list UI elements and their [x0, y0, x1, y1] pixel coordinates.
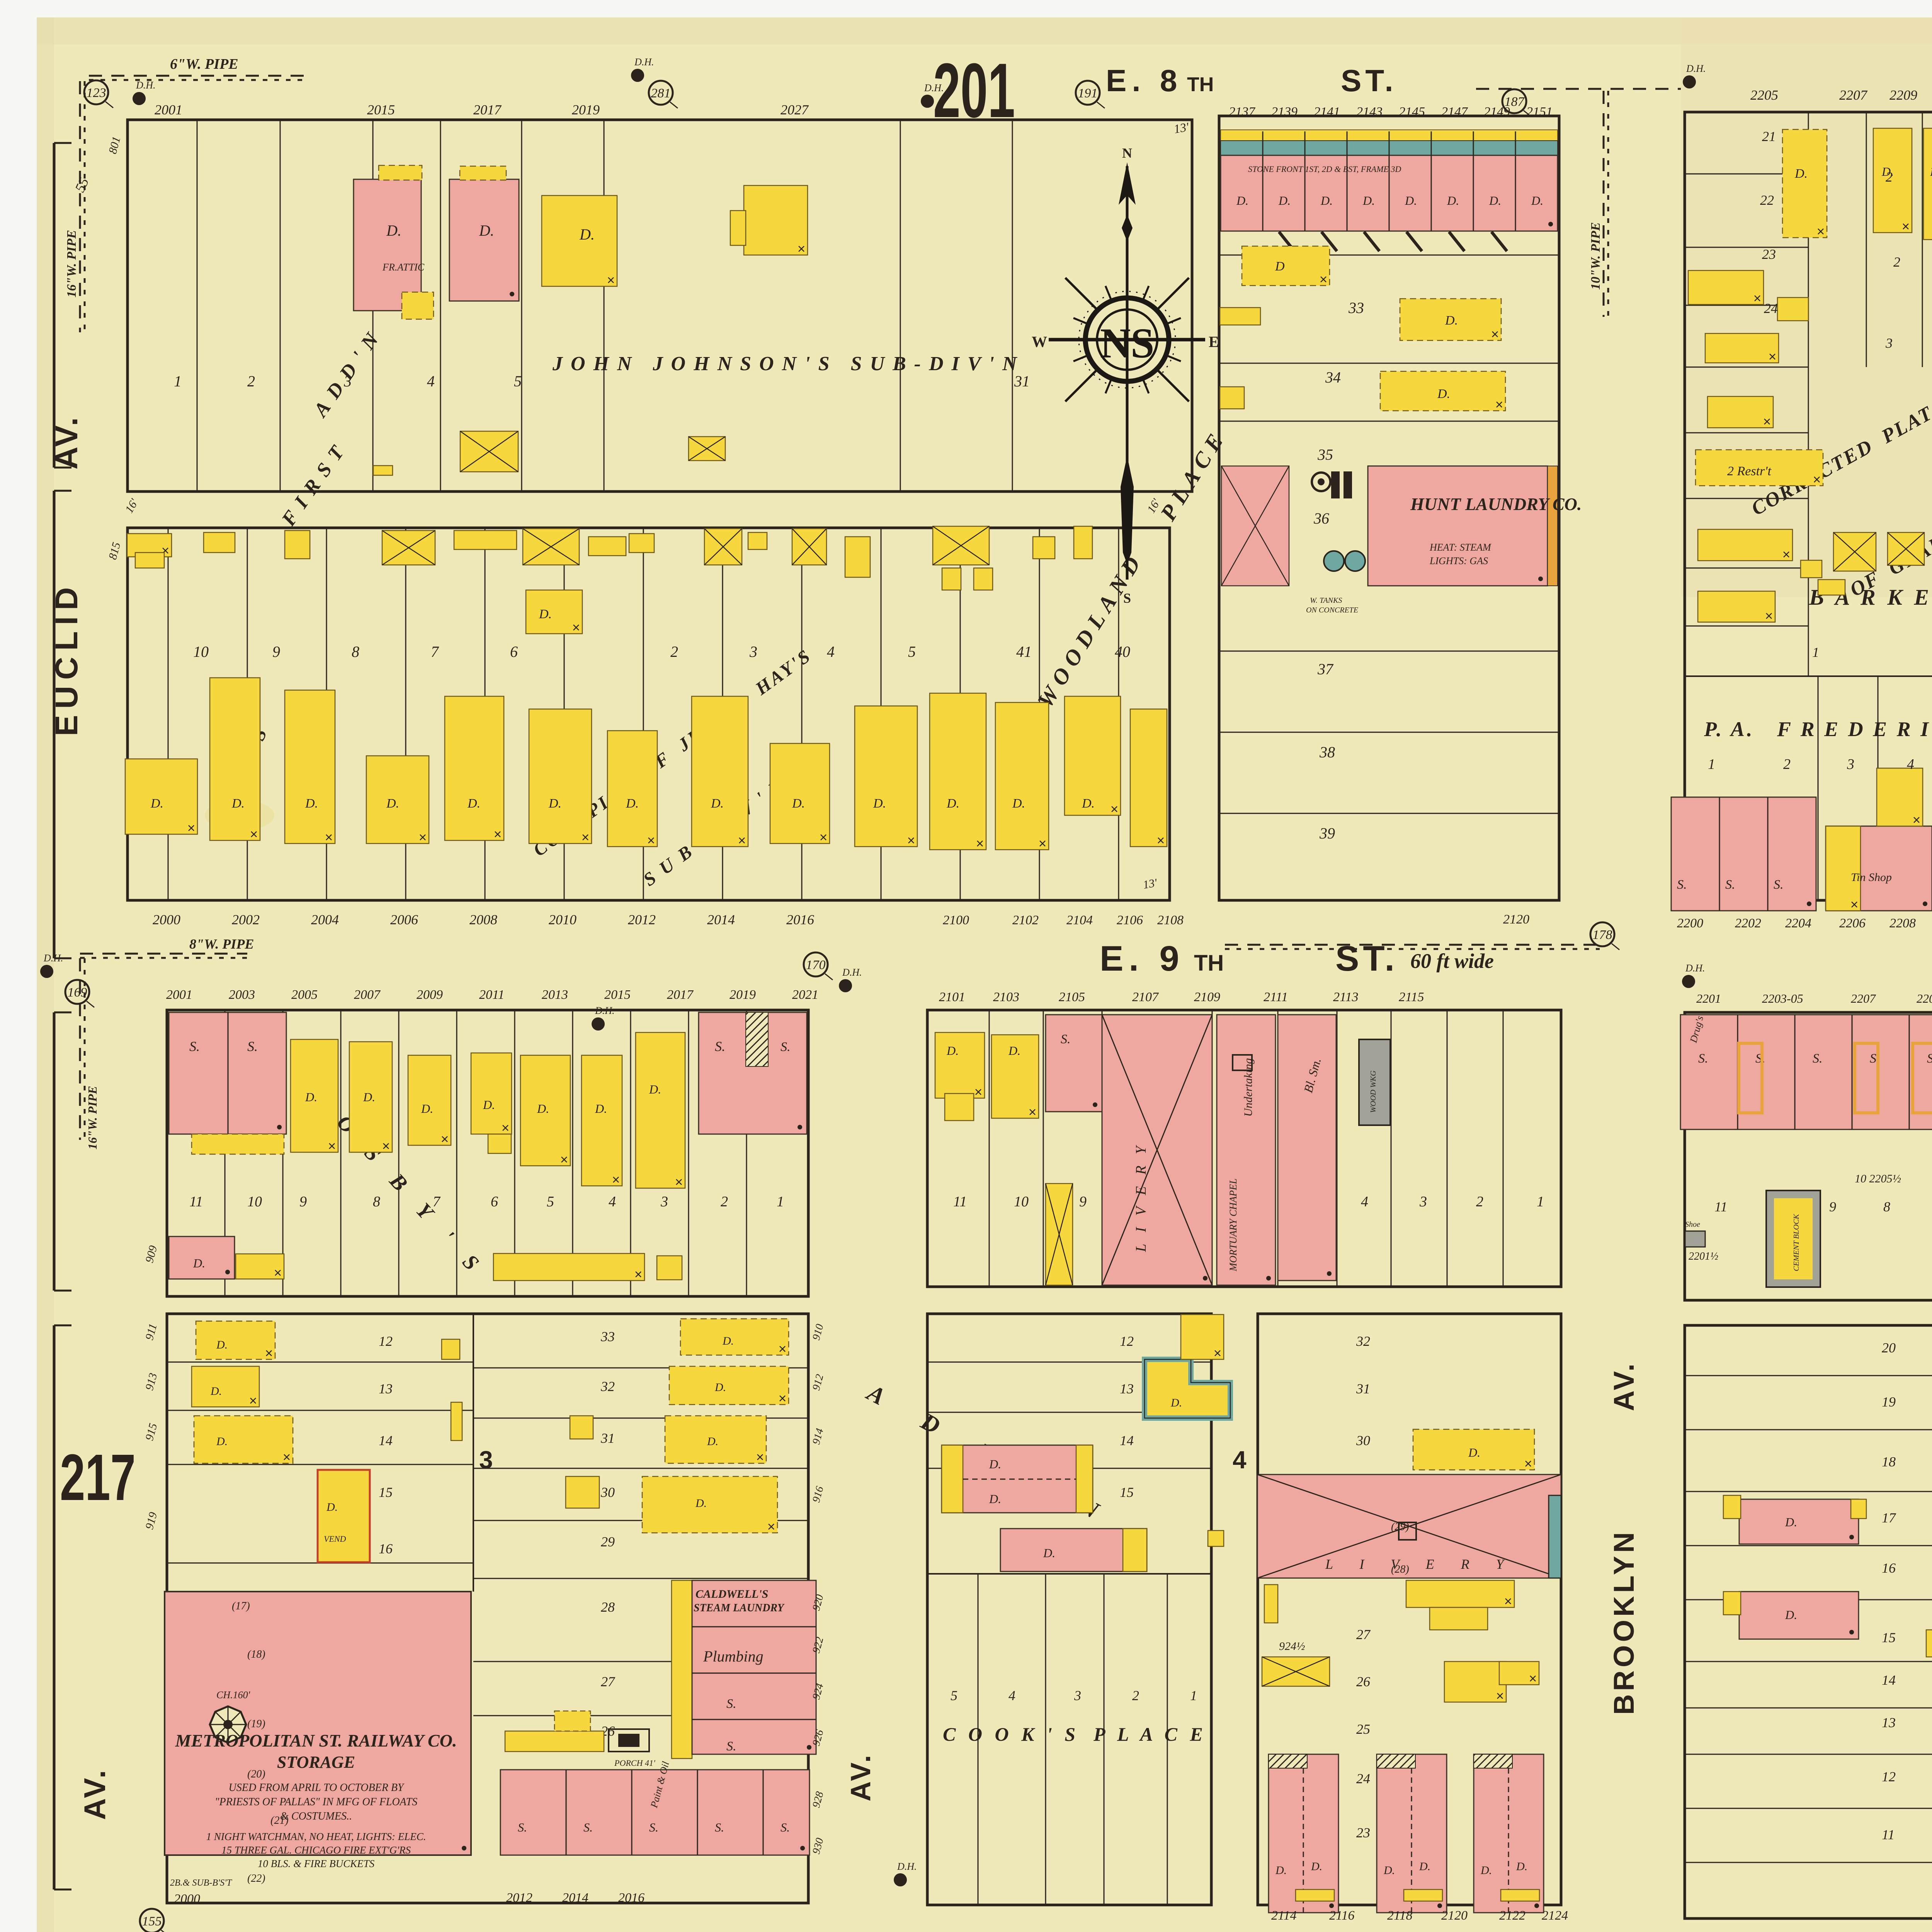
svg-text:38: 38: [1319, 743, 1335, 761]
svg-text:S.: S.: [1774, 878, 1784, 892]
svg-text:S.: S.: [726, 1739, 736, 1753]
svg-text:D.: D.: [1480, 1864, 1492, 1877]
svg-text:D.: D.: [946, 1044, 959, 1058]
svg-text:32: 32: [600, 1379, 615, 1394]
svg-text:2017: 2017: [667, 988, 694, 1002]
svg-text:W. TANKS: W. TANKS: [1310, 596, 1342, 605]
svg-text:2201½: 2201½: [1689, 1250, 1718, 1262]
svg-text:10 BLS. & FIRE BUCKETS: 10 BLS. & FIRE BUCKETS: [258, 1858, 375, 1869]
svg-text:D.H.: D.H.: [634, 56, 654, 68]
svg-text:11: 11: [953, 1194, 967, 1210]
svg-text:D.: D.: [1082, 796, 1095, 811]
svg-text:D.: D.: [1383, 1864, 1395, 1877]
svg-text:2201: 2201: [1696, 992, 1721, 1005]
svg-text:2203-05: 2203-05: [1762, 992, 1803, 1005]
svg-text:12: 12: [1882, 1769, 1896, 1784]
svg-text:TH: TH: [1187, 73, 1214, 96]
svg-text:2001: 2001: [155, 102, 182, 117]
svg-text:D.H.: D.H.: [924, 82, 944, 94]
svg-text:2108: 2108: [1157, 913, 1184, 927]
svg-text:2016: 2016: [618, 1891, 645, 1905]
svg-text:S.: S.: [1813, 1051, 1823, 1066]
svg-text:D.: D.: [1445, 313, 1458, 328]
svg-text:D.: D.: [326, 1501, 338, 1514]
svg-text:2100: 2100: [943, 913, 969, 927]
svg-text:ST.: ST.: [1341, 63, 1397, 98]
svg-text:N: N: [1122, 145, 1132, 161]
svg-text:2002: 2002: [232, 912, 260, 927]
svg-text:11: 11: [1714, 1199, 1727, 1214]
svg-text:2207: 2207: [1851, 992, 1876, 1005]
svg-text:1: 1: [174, 372, 182, 390]
svg-text:"PRIESTS OF PALLAS" IN MFG OF: "PRIESTS OF PALLAS" IN MFG OF FLOATS: [215, 1796, 417, 1808]
svg-text:D.: D.: [1419, 1860, 1430, 1873]
svg-text:4: 4: [1907, 756, 1914, 772]
svg-text:1: 1: [1708, 756, 1715, 772]
svg-text:13: 13: [379, 1381, 393, 1396]
svg-text:155: 155: [142, 1914, 162, 1929]
svg-text:(19): (19): [247, 1718, 265, 1730]
svg-text:4: 4: [609, 1194, 616, 1210]
svg-text:10: 10: [247, 1194, 262, 1210]
svg-text:S.: S.: [1755, 1051, 1765, 1066]
svg-text:D.: D.: [1785, 1515, 1797, 1529]
svg-text:2105: 2105: [1059, 990, 1085, 1004]
svg-text:3: 3: [479, 1446, 493, 1474]
svg-text:2205: 2205: [1750, 87, 1778, 103]
svg-text:EUCLID: EUCLID: [49, 581, 84, 736]
svg-text:2017: 2017: [473, 102, 502, 117]
svg-text:29: 29: [601, 1534, 615, 1549]
svg-text:D.H.: D.H.: [842, 967, 862, 978]
svg-text:J O H N J O H N S O N ' S: J O H N J O H N S O N ' S S U B - D I V …: [552, 353, 1019, 375]
svg-text:S.: S.: [649, 1820, 658, 1834]
svg-text:2003: 2003: [229, 988, 255, 1002]
svg-text:C O O K ' S: C O O K ' S: [943, 1723, 1079, 1745]
svg-text:D.: D.: [792, 796, 805, 811]
svg-text:2107: 2107: [1132, 990, 1159, 1004]
svg-text:27: 27: [1356, 1627, 1371, 1642]
svg-text:USED FROM APRIL TO OCTOBER BY: USED FROM APRIL TO OCTOBER BY: [229, 1782, 405, 1794]
svg-text:15: 15: [1120, 1485, 1134, 1500]
svg-text:2111: 2111: [1264, 990, 1288, 1004]
svg-text:2004: 2004: [311, 912, 339, 927]
svg-text:13': 13': [1142, 876, 1158, 891]
svg-text:2106: 2106: [1117, 913, 1143, 927]
svg-text:(21): (21): [270, 1815, 289, 1827]
svg-text:178: 178: [1593, 928, 1612, 942]
svg-text:AV.: AV.: [49, 415, 84, 469]
svg-text:2143: 2143: [1356, 105, 1383, 119]
svg-text:2027: 2027: [781, 102, 809, 117]
svg-text:5: 5: [514, 372, 522, 390]
svg-text:Plumbing: Plumbing: [703, 1648, 764, 1665]
svg-text:S.: S.: [1677, 878, 1687, 892]
svg-text:D.: D.: [1785, 1608, 1797, 1622]
svg-text:2139: 2139: [1271, 105, 1298, 119]
svg-text:41: 41: [1016, 643, 1032, 660]
svg-text:D.: D.: [989, 1492, 1001, 1506]
svg-text:D.: D.: [386, 222, 401, 239]
svg-text:D.: D.: [537, 1102, 549, 1116]
svg-text:D.: D.: [946, 796, 959, 811]
svg-text:2: 2: [1132, 1688, 1139, 1703]
svg-text:2204: 2204: [1785, 916, 1811, 930]
svg-text:Shoe: Shoe: [1685, 1220, 1700, 1229]
svg-text:2102: 2102: [1012, 913, 1039, 927]
svg-text:STEAM LAUNDRY: STEAM LAUNDRY: [694, 1602, 785, 1614]
svg-text:2137: 2137: [1229, 105, 1256, 119]
svg-text:23: 23: [1762, 247, 1776, 262]
svg-text:D.H.: D.H.: [136, 80, 156, 91]
svg-text:2209: 2209: [1917, 992, 1932, 1005]
svg-text:2115: 2115: [1399, 990, 1424, 1004]
svg-text:2021: 2021: [792, 988, 818, 1002]
svg-text:4: 4: [1233, 1446, 1247, 1474]
svg-text:D.: D.: [722, 1335, 734, 1347]
svg-text:8"W. PIPE: 8"W. PIPE: [189, 936, 254, 952]
svg-text:S.: S.: [1927, 1051, 1932, 1066]
svg-text:2: 2: [1783, 756, 1791, 772]
svg-text:AV.: AV.: [78, 1768, 112, 1820]
svg-text:MORTUARY CHAPEL: MORTUARY CHAPEL: [1228, 1179, 1239, 1272]
svg-text:W: W: [1032, 333, 1047, 350]
svg-text:D.: D.: [479, 222, 494, 239]
svg-text:2122: 2122: [1499, 1908, 1526, 1923]
svg-text:30: 30: [600, 1485, 615, 1500]
svg-text:D.H.: D.H.: [1686, 63, 1706, 74]
svg-text:2206: 2206: [1839, 916, 1866, 930]
svg-text:12: 12: [379, 1333, 393, 1349]
svg-text:2005: 2005: [291, 988, 318, 1002]
svg-text:D.: D.: [483, 1098, 495, 1112]
svg-text:17: 17: [1882, 1510, 1896, 1526]
svg-text:8: 8: [1883, 1199, 1890, 1214]
svg-text:D.: D.: [1012, 796, 1025, 811]
svg-text:D.: D.: [714, 1381, 726, 1394]
svg-text:D.: D.: [707, 1435, 718, 1448]
svg-text:D.: D.: [210, 1385, 222, 1398]
svg-text:28: 28: [601, 1599, 615, 1615]
svg-text:2001: 2001: [166, 988, 192, 1002]
svg-text:S.: S.: [518, 1820, 527, 1834]
svg-text:CEMENT BLOCK: CEMENT BLOCK: [1792, 1213, 1801, 1271]
svg-text:E. 9: E. 9: [1100, 939, 1185, 978]
svg-text:D.: D.: [1320, 194, 1333, 207]
svg-text:S.: S.: [781, 1040, 791, 1054]
svg-text:2015: 2015: [367, 102, 395, 117]
svg-text:S.: S.: [715, 1820, 724, 1834]
svg-text:16"W. PIPE: 16"W. PIPE: [65, 230, 79, 298]
svg-text:7: 7: [431, 643, 439, 660]
svg-text:D.: D.: [873, 796, 886, 811]
svg-text:13: 13: [1120, 1381, 1134, 1396]
svg-text:D.: D.: [305, 1090, 317, 1104]
svg-text:4: 4: [427, 372, 435, 390]
svg-text:METROPOLITAN ST. RAILWAY CO.: METROPOLITAN ST. RAILWAY CO.: [175, 1731, 457, 1750]
svg-text:5: 5: [547, 1194, 554, 1210]
svg-text:26: 26: [1356, 1674, 1370, 1689]
svg-text:2207: 2207: [1839, 87, 1868, 103]
svg-text:FR.ATTIC: FR.ATTIC: [382, 262, 425, 273]
svg-text:3: 3: [1419, 1194, 1427, 1210]
svg-text:2: 2: [1886, 169, 1893, 185]
svg-text:2200: 2200: [1677, 916, 1703, 930]
svg-text:27: 27: [601, 1674, 616, 1689]
svg-text:NS: NS: [1100, 320, 1155, 367]
svg-text:(17): (17): [232, 1600, 250, 1612]
svg-text:D.H.: D.H.: [43, 952, 63, 964]
svg-text:15: 15: [1882, 1630, 1896, 1645]
svg-text:D.: D.: [216, 1435, 228, 1448]
svg-text:CALDWELL'S: CALDWELL'S: [696, 1588, 768, 1600]
svg-text:19: 19: [1882, 1394, 1896, 1410]
svg-text:E. 8: E. 8: [1106, 63, 1182, 98]
svg-text:10"W. PIPE: 10"W. PIPE: [1588, 222, 1603, 290]
svg-text:123: 123: [87, 86, 106, 100]
svg-text:36: 36: [1313, 510, 1329, 527]
svg-text:8: 8: [352, 643, 359, 660]
svg-text:P L A C E: P L A C E: [1093, 1723, 1207, 1745]
svg-text:ST.: ST.: [1329, 1927, 1388, 1932]
svg-text:2008: 2008: [469, 912, 497, 927]
svg-text:S.: S.: [247, 1039, 258, 1054]
svg-text:187: 187: [1505, 95, 1525, 109]
svg-text:2012: 2012: [506, 1891, 532, 1905]
svg-text:D.: D.: [363, 1090, 375, 1104]
svg-text:E. 10: E. 10: [1103, 1927, 1206, 1932]
svg-text:5: 5: [908, 643, 916, 660]
svg-text:31: 31: [1356, 1381, 1370, 1396]
svg-text:STORAGE: STORAGE: [277, 1753, 355, 1772]
svg-text:34: 34: [1325, 369, 1341, 386]
svg-text:2019: 2019: [730, 988, 756, 1002]
svg-text:D.H.: D.H.: [1685, 963, 1705, 974]
svg-text:Undertaking: Undertaking: [1242, 1058, 1255, 1117]
svg-text:2007: 2007: [354, 988, 381, 1002]
svg-text:2: 2: [721, 1194, 728, 1210]
svg-text:191: 191: [1078, 86, 1098, 100]
svg-text:22: 22: [1760, 192, 1774, 208]
svg-text:D.: D.: [421, 1102, 433, 1116]
svg-text:9: 9: [1829, 1199, 1836, 1214]
svg-text:D.: D.: [231, 796, 245, 811]
svg-text:30: 30: [1356, 1433, 1370, 1448]
svg-text:S.: S.: [1698, 1051, 1708, 1066]
svg-text:10: 10: [193, 643, 209, 660]
svg-text:D.: D.: [579, 226, 595, 243]
svg-text:D.: D.: [1311, 1860, 1322, 1873]
svg-text:60 ft wide: 60 ft wide: [1410, 949, 1494, 973]
svg-text:2147: 2147: [1441, 105, 1468, 119]
svg-text:HEAT: STEAM: HEAT: STEAM: [1429, 542, 1492, 553]
svg-text:D.: D.: [1794, 167, 1808, 181]
svg-text:ON CONCRETE: ON CONCRETE: [1306, 606, 1358, 614]
svg-text:39: 39: [1319, 825, 1335, 842]
svg-text:(22): (22): [247, 1872, 265, 1884]
svg-text:D.: D.: [1278, 194, 1291, 207]
svg-text:3: 3: [1847, 756, 1854, 772]
svg-text:S.: S.: [1061, 1032, 1071, 1046]
svg-text:31: 31: [1014, 372, 1030, 390]
svg-text:S.: S.: [583, 1820, 593, 1834]
svg-text:15 THREE GAL. CHICAGO FIRE EXT: 15 THREE GAL. CHICAGO FIRE EXT'G'RS: [221, 1844, 411, 1856]
svg-text:LIGHTS: GAS: LIGHTS: GAS: [1429, 555, 1488, 566]
svg-text:D.: D.: [539, 607, 552, 621]
svg-text:BROOKLYN: BROOKLYN: [1608, 1529, 1640, 1715]
svg-text:D.: D.: [1531, 194, 1543, 207]
svg-text:9: 9: [1079, 1194, 1087, 1210]
svg-text:S.: S.: [781, 1820, 790, 1834]
svg-text:D.: D.: [386, 796, 399, 811]
svg-text:2: 2: [1476, 1194, 1483, 1210]
svg-text:2011: 2011: [479, 988, 504, 1002]
svg-text:HUNT LAUNDRY CO.: HUNT LAUNDRY CO.: [1410, 494, 1582, 514]
svg-text:(28): (28): [1391, 1563, 1409, 1575]
svg-text:2010: 2010: [549, 912, 577, 927]
svg-text:11: 11: [189, 1194, 203, 1210]
svg-text:35: 35: [1317, 446, 1333, 463]
svg-text:6: 6: [491, 1194, 498, 1210]
svg-text:169: 169: [68, 985, 87, 1000]
svg-text:16: 16: [1882, 1560, 1896, 1576]
svg-text:D.: D.: [1447, 194, 1459, 207]
svg-text:25: 25: [1356, 1721, 1370, 1737]
svg-text:3: 3: [1074, 1688, 1081, 1703]
svg-text:D.: D.: [193, 1256, 205, 1270]
svg-text:2124: 2124: [1542, 1908, 1568, 1923]
svg-text:ST.: ST.: [1335, 939, 1398, 978]
svg-text:2014: 2014: [562, 1891, 588, 1905]
svg-text:14: 14: [379, 1433, 393, 1448]
svg-text:D.: D.: [1489, 194, 1501, 207]
svg-text:16"W. PIPE: 16"W. PIPE: [85, 1086, 99, 1150]
svg-text:D.: D.: [1930, 166, 1932, 179]
svg-text:2109: 2109: [1194, 990, 1220, 1004]
svg-text:15: 15: [379, 1485, 393, 1500]
svg-text:23: 23: [1356, 1825, 1370, 1840]
svg-text:D.: D.: [1362, 194, 1375, 207]
svg-text:S.: S.: [189, 1039, 200, 1054]
svg-text:33: 33: [1348, 299, 1364, 316]
svg-text:32: 32: [1356, 1333, 1370, 1349]
svg-text:D: D: [1275, 259, 1285, 274]
svg-text:D.: D.: [150, 796, 163, 811]
svg-text:6: 6: [510, 643, 518, 660]
svg-text:D.: D.: [1405, 194, 1417, 207]
svg-text:D.: D.: [1170, 1396, 1182, 1409]
svg-text:(20): (20): [247, 1768, 265, 1780]
svg-text:1: 1: [1537, 1194, 1544, 1210]
svg-text:AV.: AV.: [1608, 1361, 1640, 1411]
svg-text:9: 9: [299, 1194, 307, 1210]
svg-text:2208: 2208: [1889, 916, 1916, 930]
svg-text:170: 170: [806, 958, 826, 972]
svg-text:D.: D.: [1043, 1546, 1055, 1560]
svg-text:D.: D.: [1468, 1446, 1480, 1459]
svg-text:TH: TH: [1194, 951, 1224, 976]
svg-text:STONE FRONT 1ST, 2D & BST, FRA: STONE FRONT 1ST, 2D & BST, FRAME 3D: [1248, 164, 1401, 174]
svg-text:18: 18: [1882, 1454, 1896, 1469]
svg-text:2114: 2114: [1271, 1908, 1296, 1923]
svg-text:D.H.: D.H.: [897, 1861, 917, 1872]
svg-text:5: 5: [951, 1688, 957, 1703]
svg-text:D.: D.: [595, 1102, 607, 1116]
svg-text:2B.& SUB-B'S'T: 2B.& SUB-B'S'T: [170, 1878, 232, 1888]
svg-text:Tin Shop: Tin Shop: [1851, 871, 1892, 884]
svg-text:D.: D.: [1437, 387, 1450, 401]
svg-text:2103: 2103: [993, 990, 1019, 1004]
svg-text:1: 1: [1190, 1688, 1197, 1703]
svg-text:2015: 2015: [604, 988, 631, 1002]
svg-text:8: 8: [373, 1194, 380, 1210]
svg-text:2202: 2202: [1735, 916, 1761, 930]
svg-text:D.: D.: [216, 1338, 228, 1351]
svg-text:PORCH 41': PORCH 41': [614, 1758, 655, 1768]
svg-text:D.: D.: [1236, 194, 1248, 207]
svg-text:D.: D.: [305, 796, 318, 811]
svg-text:6"W. PIPE: 6"W. PIPE: [170, 56, 238, 72]
svg-text:3: 3: [1885, 335, 1893, 351]
svg-text:AV.: AV.: [845, 1753, 876, 1801]
svg-text:D.: D.: [649, 1082, 661, 1096]
svg-text:4: 4: [1009, 1688, 1015, 1703]
svg-text:31: 31: [600, 1430, 615, 1446]
svg-text:D.: D.: [626, 796, 639, 811]
svg-text:4: 4: [1361, 1194, 1368, 1210]
svg-text:(18): (18): [247, 1648, 265, 1660]
svg-text:2: 2: [670, 643, 678, 660]
svg-text:2 Restr't: 2 Restr't: [1727, 464, 1772, 478]
svg-text:LIVERY: LIVERY: [1133, 1134, 1149, 1252]
svg-text:2012: 2012: [628, 912, 656, 927]
svg-text:3: 3: [749, 643, 757, 660]
svg-text:2145: 2145: [1399, 105, 1425, 119]
svg-text:E: E: [1209, 333, 1219, 350]
svg-text:& COSTUMES..: & COSTUMES..: [280, 1810, 352, 1822]
svg-text:D.: D.: [1275, 1864, 1287, 1877]
svg-text:2120: 2120: [1441, 1908, 1468, 1923]
svg-text:2000: 2000: [153, 912, 180, 927]
svg-text:3: 3: [660, 1194, 668, 1210]
svg-text:L I V E R Y: L I V E R Y: [1325, 1556, 1515, 1572]
svg-text:S.: S.: [715, 1039, 725, 1054]
svg-text:12: 12: [1120, 1333, 1134, 1349]
svg-text:20: 20: [1882, 1340, 1896, 1355]
svg-text:281: 281: [651, 86, 671, 100]
svg-text:P. A. F R E D E R I C K ' S: P. A. F R E D E R I C K ' S: [1704, 718, 1932, 741]
svg-text:13: 13: [1882, 1715, 1896, 1730]
svg-text:21: 21: [1762, 129, 1776, 144]
svg-text:2101: 2101: [939, 990, 965, 1004]
svg-text:2016: 2016: [786, 912, 814, 927]
svg-text:40: 40: [1115, 643, 1130, 660]
svg-text:D.: D.: [695, 1497, 707, 1510]
svg-text:CH.160': CH.160': [216, 1689, 250, 1701]
svg-text:14: 14: [1882, 1672, 1896, 1688]
svg-text:9: 9: [272, 643, 280, 660]
svg-text:2151: 2151: [1526, 105, 1553, 119]
svg-text:VEND: VEND: [324, 1534, 346, 1544]
svg-text:1: 1: [1812, 645, 1819, 660]
svg-text:924½: 924½: [1279, 1640, 1305, 1653]
svg-text:2104: 2104: [1066, 913, 1093, 927]
svg-text:2116: 2116: [1329, 1908, 1354, 1923]
svg-text:11: 11: [1882, 1827, 1895, 1842]
svg-text:D.: D.: [467, 796, 480, 811]
svg-text:10 2205½: 10 2205½: [1855, 1172, 1901, 1185]
svg-text:D.: D.: [711, 796, 724, 811]
